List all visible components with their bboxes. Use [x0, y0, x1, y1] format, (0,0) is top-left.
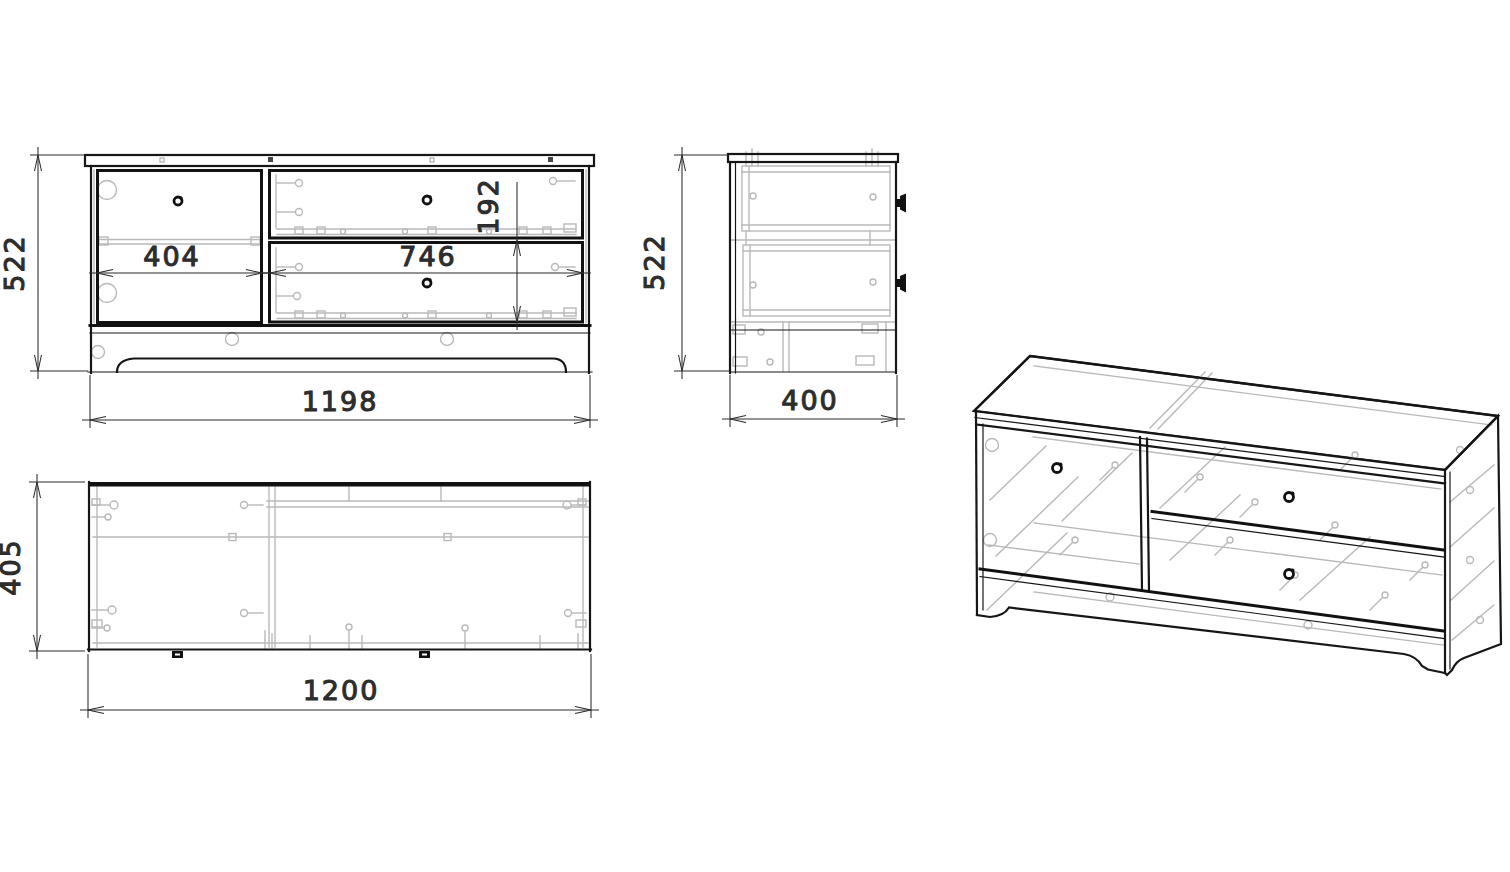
front-drawer-lower-knob [423, 278, 432, 287]
iso-door-knob [1053, 463, 1063, 473]
dim-door-width: 404 [89, 241, 270, 277]
front-door-knob [174, 196, 183, 205]
side-view: 522 400 [639, 147, 906, 427]
dim-label-top-depth: 405 [0, 538, 26, 596]
dim-side-depth: 400 [722, 375, 905, 427]
top-knob-drawer [419, 651, 430, 658]
technical-drawing: 522 1198 404 746 [0, 0, 1510, 872]
dim-label-side-depth: 400 [781, 385, 839, 416]
dim-top-depth: 405 [0, 474, 85, 659]
dim-drawer-front-height: 192 [473, 177, 521, 330]
front-view: 522 1198 404 746 [0, 147, 598, 428]
side-knob-upper [896, 194, 906, 213]
dim-front-width: 1198 [82, 375, 598, 428]
dim-label-door-width: 404 [143, 241, 201, 272]
front-top-panel [85, 155, 594, 166]
dim-label-drawer-front-height: 192 [473, 177, 504, 235]
dim-front-height: 522 [0, 147, 88, 379]
iso-drawer-upper-knob [1285, 492, 1295, 502]
drawing-canvas: 522 1198 404 746 [0, 0, 1510, 872]
top-view: 405 1200 [0, 474, 599, 718]
dim-drawers-width: 746 [262, 241, 591, 277]
dim-label-front-height: 522 [0, 234, 30, 292]
side-knob-lower [896, 274, 906, 293]
front-plinth-arch [117, 359, 566, 373]
top-back-edge [88, 482, 591, 487]
top-knob-door [172, 651, 183, 658]
side-hidden-hardware [731, 149, 895, 371]
top-hidden-hardware [92, 487, 588, 648]
dim-label-drawers-width: 746 [399, 241, 457, 272]
dim-label-side-height: 522 [639, 233, 670, 291]
dim-label-front-width: 1198 [302, 386, 379, 417]
dim-side-height: 522 [639, 147, 730, 379]
front-drawer-upper-knob [423, 195, 432, 204]
iso-drawer-lower-knob [1285, 569, 1295, 579]
dim-top-width: 1200 [80, 654, 599, 718]
isometric-view [974, 356, 1501, 675]
dim-label-top-width: 1200 [303, 675, 380, 706]
